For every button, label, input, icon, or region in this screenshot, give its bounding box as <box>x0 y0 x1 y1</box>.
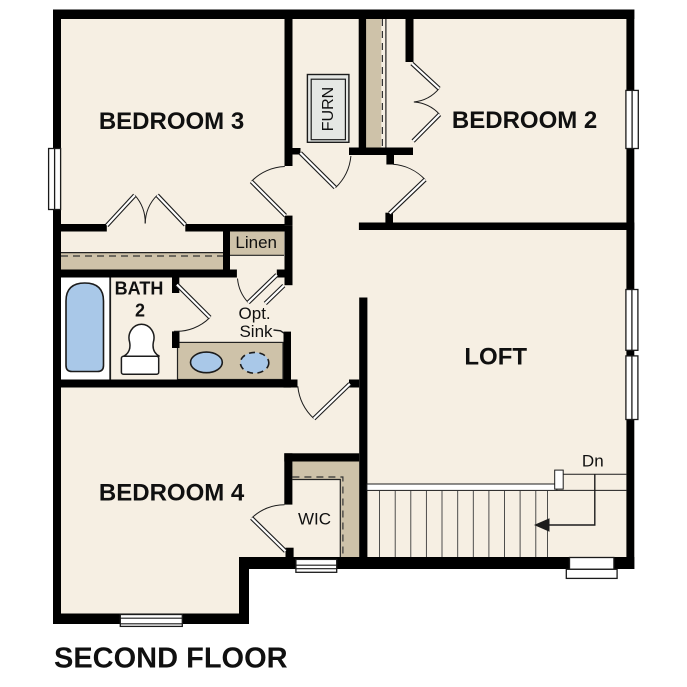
svg-text:Dn: Dn <box>582 452 604 471</box>
svg-text:BATH: BATH <box>115 279 164 299</box>
svg-text:Linen: Linen <box>235 233 277 252</box>
svg-text:Sink: Sink <box>239 322 273 341</box>
svg-text:2: 2 <box>135 300 145 320</box>
svg-text:SECOND FLOOR: SECOND FLOOR <box>54 643 288 675</box>
svg-text:Opt.: Opt. <box>239 304 271 323</box>
svg-text:BEDROOM 3: BEDROOM 3 <box>99 108 244 135</box>
svg-text:WIC: WIC <box>298 510 331 529</box>
svg-text:FURN: FURN <box>320 87 337 131</box>
svg-text:BEDROOM 2: BEDROOM 2 <box>452 107 597 134</box>
svg-text:BEDROOM 4: BEDROOM 4 <box>99 480 245 507</box>
svg-text:LOFT: LOFT <box>464 343 527 370</box>
